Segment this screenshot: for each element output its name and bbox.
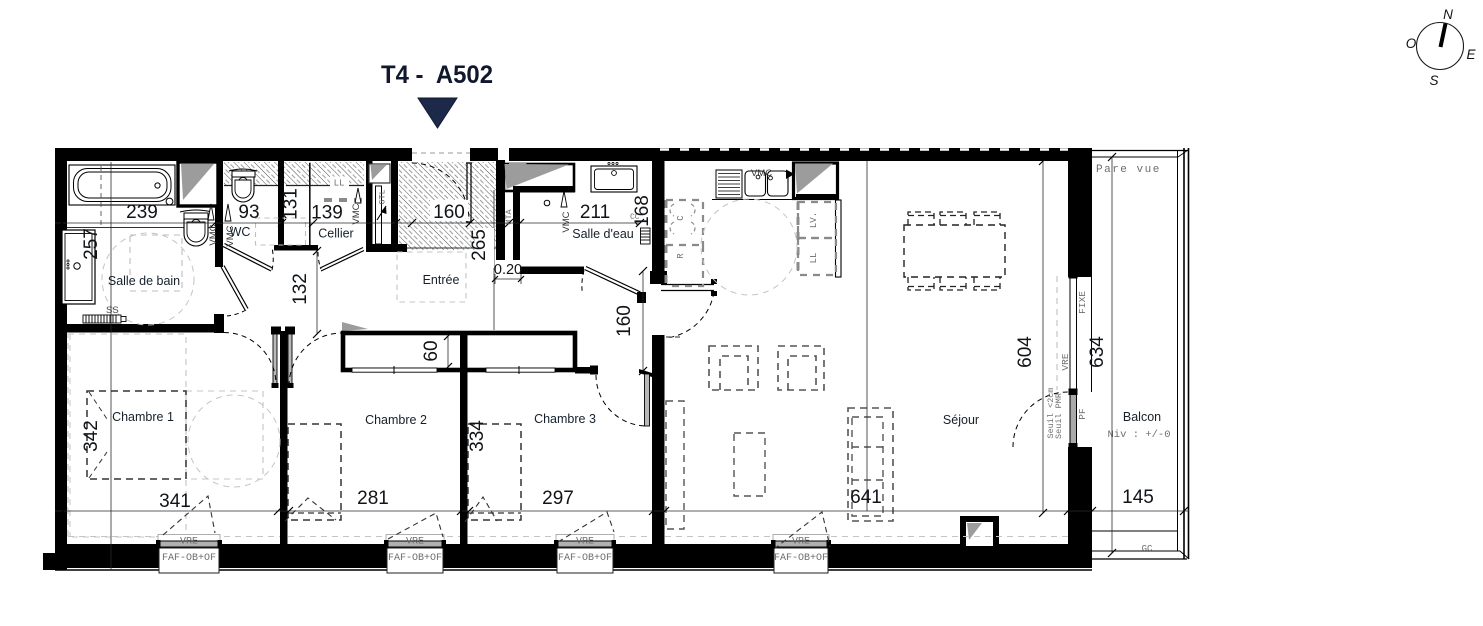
svg-text:641: 641 <box>850 487 882 508</box>
svg-text:Salle de bain: Salle de bain <box>108 274 180 288</box>
svg-text:WC: WC <box>230 225 251 239</box>
svg-text:211: 211 <box>580 202 610 223</box>
svg-text:VMC: VMC <box>208 224 219 245</box>
svg-text:FAF-OB+OF: FAF-OB+OF <box>774 553 828 564</box>
svg-text:60: 60 <box>421 340 442 361</box>
svg-text:132: 132 <box>290 273 311 305</box>
svg-text:239: 239 <box>126 202 158 223</box>
svg-text:FAF-OB+OF: FAF-OB+OF <box>558 553 612 564</box>
svg-text:139: 139 <box>311 203 343 224</box>
svg-text:PF: PF <box>1077 408 1088 420</box>
svg-text:VMC: VMC <box>751 168 772 179</box>
svg-text:S: S <box>1429 73 1438 88</box>
svg-text:168: 168 <box>632 195 653 227</box>
svg-text:297: 297 <box>542 488 574 509</box>
svg-text:160: 160 <box>433 202 465 223</box>
svg-text:Seuil PMR: Seuil PMR <box>1054 393 1064 439</box>
svg-text:Chambre 1: Chambre 1 <box>112 410 174 424</box>
svg-text:GTL: GTL <box>378 189 388 204</box>
svg-text:334: 334 <box>467 420 488 452</box>
svg-text:LL: LL <box>334 179 345 189</box>
svg-text:O: O <box>1406 36 1417 51</box>
svg-text:N: N <box>1443 7 1453 22</box>
svg-text:145: 145 <box>1122 487 1154 508</box>
svg-text:Entrée: Entrée <box>423 273 460 287</box>
svg-text:FAF-OB+OF: FAF-OB+OF <box>388 553 442 564</box>
svg-text:VRE: VRE <box>406 537 424 548</box>
svg-text:Chambre 3: Chambre 3 <box>534 412 596 426</box>
svg-text:257: 257 <box>81 228 102 260</box>
svg-text:E: E <box>1466 47 1476 62</box>
svg-text:LV.: LV. <box>809 212 819 228</box>
svg-text:Séjour: Séjour <box>943 413 979 427</box>
svg-text:SS: SS <box>106 305 119 316</box>
svg-text:93: 93 <box>238 202 259 223</box>
svg-text:C: C <box>676 215 686 221</box>
svg-text:281: 281 <box>357 488 389 509</box>
svg-text:Balcon: Balcon <box>1123 410 1161 424</box>
svg-text:634: 634 <box>1087 336 1108 368</box>
svg-text:R: R <box>676 253 686 259</box>
svg-text:0.20: 0.20 <box>494 262 522 278</box>
svg-text:VRE: VRE <box>180 537 198 548</box>
svg-text:160: 160 <box>614 305 635 337</box>
svg-text:Cellier: Cellier <box>318 227 353 241</box>
svg-text:VRE: VRE <box>576 537 594 548</box>
svg-text:Salle d'eau: Salle d'eau <box>572 227 634 241</box>
svg-text:LL: LL <box>809 253 819 264</box>
svg-text:FAF-OB+OF: FAF-OB+OF <box>162 553 216 564</box>
svg-text:VRE: VRE <box>1060 353 1071 370</box>
svg-text:GC: GC <box>1142 544 1153 554</box>
svg-text:VMC: VMC <box>351 203 362 224</box>
svg-text:604: 604 <box>1015 336 1036 368</box>
svg-text:131: 131 <box>281 188 302 220</box>
svg-text:FIXE: FIXE <box>1077 291 1088 314</box>
svg-text:Chambre 2: Chambre 2 <box>365 413 427 427</box>
svg-text:265: 265 <box>469 229 490 261</box>
svg-text:341: 341 <box>159 491 191 512</box>
svg-text:VMC: VMC <box>561 211 572 232</box>
svg-text:VRE: VRE <box>792 537 810 548</box>
svg-text:342: 342 <box>81 420 102 452</box>
svg-text:Niv : +/-0: Niv : +/-0 <box>1107 429 1170 441</box>
svg-text:T4 - A502: T4 - A502 <box>381 61 493 89</box>
svg-text:MTA: MTA <box>504 208 514 224</box>
svg-text:Pare vue: Pare vue <box>1096 164 1161 176</box>
